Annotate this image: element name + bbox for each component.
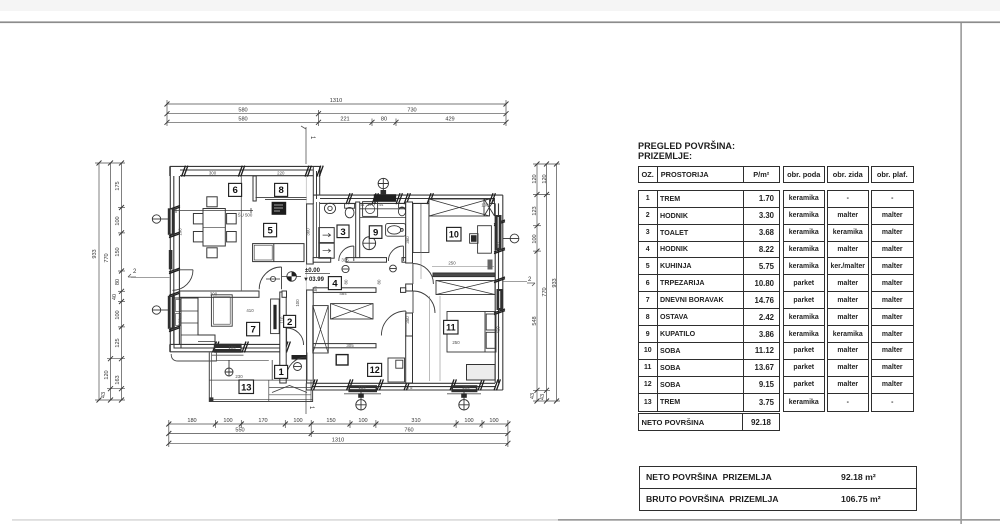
- svg-text:163: 163: [115, 375, 121, 384]
- svg-text:11: 11: [446, 323, 456, 333]
- svg-text:125: 125: [115, 338, 121, 347]
- svg-text:100: 100: [464, 418, 473, 424]
- svg-text:123: 123: [532, 206, 538, 215]
- svg-text:220: 220: [277, 170, 285, 175]
- svg-text:1: 1: [308, 406, 314, 410]
- svg-text:120: 120: [532, 174, 538, 183]
- svg-text:170: 170: [367, 202, 375, 207]
- svg-text:100: 100: [532, 234, 538, 243]
- svg-text:80: 80: [381, 116, 387, 122]
- svg-text:44: 44: [360, 202, 365, 207]
- svg-text:484: 484: [339, 291, 347, 296]
- svg-text:6: 6: [233, 185, 238, 196]
- svg-text:5: 5: [268, 226, 274, 237]
- svg-text:100: 100: [115, 310, 121, 319]
- svg-text:10: 10: [449, 230, 459, 240]
- svg-text:40: 40: [112, 294, 118, 300]
- svg-text:250: 250: [448, 261, 456, 266]
- svg-text:2: 2: [528, 277, 532, 283]
- svg-text:221: 221: [340, 116, 349, 122]
- svg-text:760: 760: [404, 428, 413, 434]
- svg-text:44: 44: [379, 202, 384, 207]
- svg-text:100: 100: [115, 216, 121, 225]
- svg-text:180: 180: [178, 318, 183, 326]
- svg-text:80: 80: [377, 279, 382, 284]
- svg-text:9: 9: [373, 228, 378, 239]
- svg-text:360: 360: [306, 228, 311, 236]
- svg-text:100: 100: [293, 418, 302, 424]
- svg-text:180: 180: [187, 418, 196, 424]
- svg-text:429: 429: [445, 116, 454, 122]
- svg-text:43: 43: [101, 392, 107, 398]
- svg-text:2: 2: [133, 269, 137, 275]
- svg-text:300: 300: [496, 242, 501, 250]
- svg-text:190: 190: [228, 345, 236, 350]
- svg-text:±0.00: ±0.00: [305, 268, 321, 274]
- svg-text:410: 410: [496, 326, 501, 334]
- svg-text:550: 550: [235, 428, 244, 434]
- svg-text:100: 100: [481, 202, 489, 207]
- svg-text:580: 580: [238, 108, 247, 114]
- svg-text:350: 350: [405, 316, 410, 324]
- svg-text:2: 2: [287, 317, 292, 328]
- svg-text:310: 310: [411, 418, 420, 424]
- svg-text:80: 80: [115, 279, 121, 285]
- svg-text:100: 100: [358, 418, 367, 424]
- svg-text:13: 13: [241, 382, 251, 393]
- svg-text:230: 230: [235, 374, 243, 379]
- svg-text:730: 730: [407, 108, 416, 114]
- svg-text:3: 3: [340, 227, 345, 238]
- svg-text:43: 43: [540, 394, 546, 400]
- svg-text:305: 305: [346, 343, 354, 348]
- svg-text:305: 305: [341, 257, 349, 262]
- svg-text:190: 190: [178, 228, 183, 236]
- svg-text:1310: 1310: [332, 437, 344, 443]
- svg-text:770: 770: [104, 253, 110, 262]
- svg-text:770: 770: [542, 287, 548, 296]
- svg-text:580: 580: [238, 116, 247, 122]
- svg-text:4: 4: [332, 278, 338, 289]
- svg-text:250: 250: [452, 340, 460, 345]
- svg-text:410: 410: [246, 308, 254, 313]
- svg-text:300: 300: [209, 170, 217, 175]
- svg-text:300: 300: [210, 292, 218, 297]
- svg-text:200: 200: [462, 385, 470, 390]
- svg-text:1: 1: [309, 136, 315, 140]
- svg-text:1: 1: [279, 367, 285, 378]
- svg-text:7: 7: [251, 325, 256, 336]
- svg-text:150: 150: [358, 385, 366, 390]
- svg-text:150: 150: [326, 418, 335, 424]
- svg-text:933: 933: [92, 249, 98, 258]
- svg-text:360: 360: [405, 236, 410, 244]
- svg-text:120: 120: [542, 174, 548, 183]
- svg-text:12: 12: [370, 365, 380, 375]
- svg-text:80: 80: [344, 279, 349, 284]
- svg-text:170: 170: [258, 418, 267, 424]
- svg-text:75: 75: [408, 385, 413, 390]
- svg-text:548: 548: [532, 316, 538, 325]
- svg-text:43: 43: [530, 393, 536, 399]
- svg-text:1310: 1310: [330, 98, 342, 104]
- svg-text:150: 150: [115, 247, 121, 256]
- svg-text:933: 933: [552, 278, 558, 287]
- svg-text:120: 120: [104, 370, 110, 379]
- svg-text:▼03.99: ▼03.99: [303, 277, 325, 283]
- svg-text:100: 100: [489, 418, 498, 424]
- svg-text:ŠU 500: ŠU 500: [238, 212, 253, 217]
- svg-text:8: 8: [279, 185, 285, 196]
- svg-text:175: 175: [115, 181, 121, 190]
- svg-text:160: 160: [313, 286, 318, 294]
- svg-text:100: 100: [295, 299, 300, 307]
- svg-text:100: 100: [223, 418, 232, 424]
